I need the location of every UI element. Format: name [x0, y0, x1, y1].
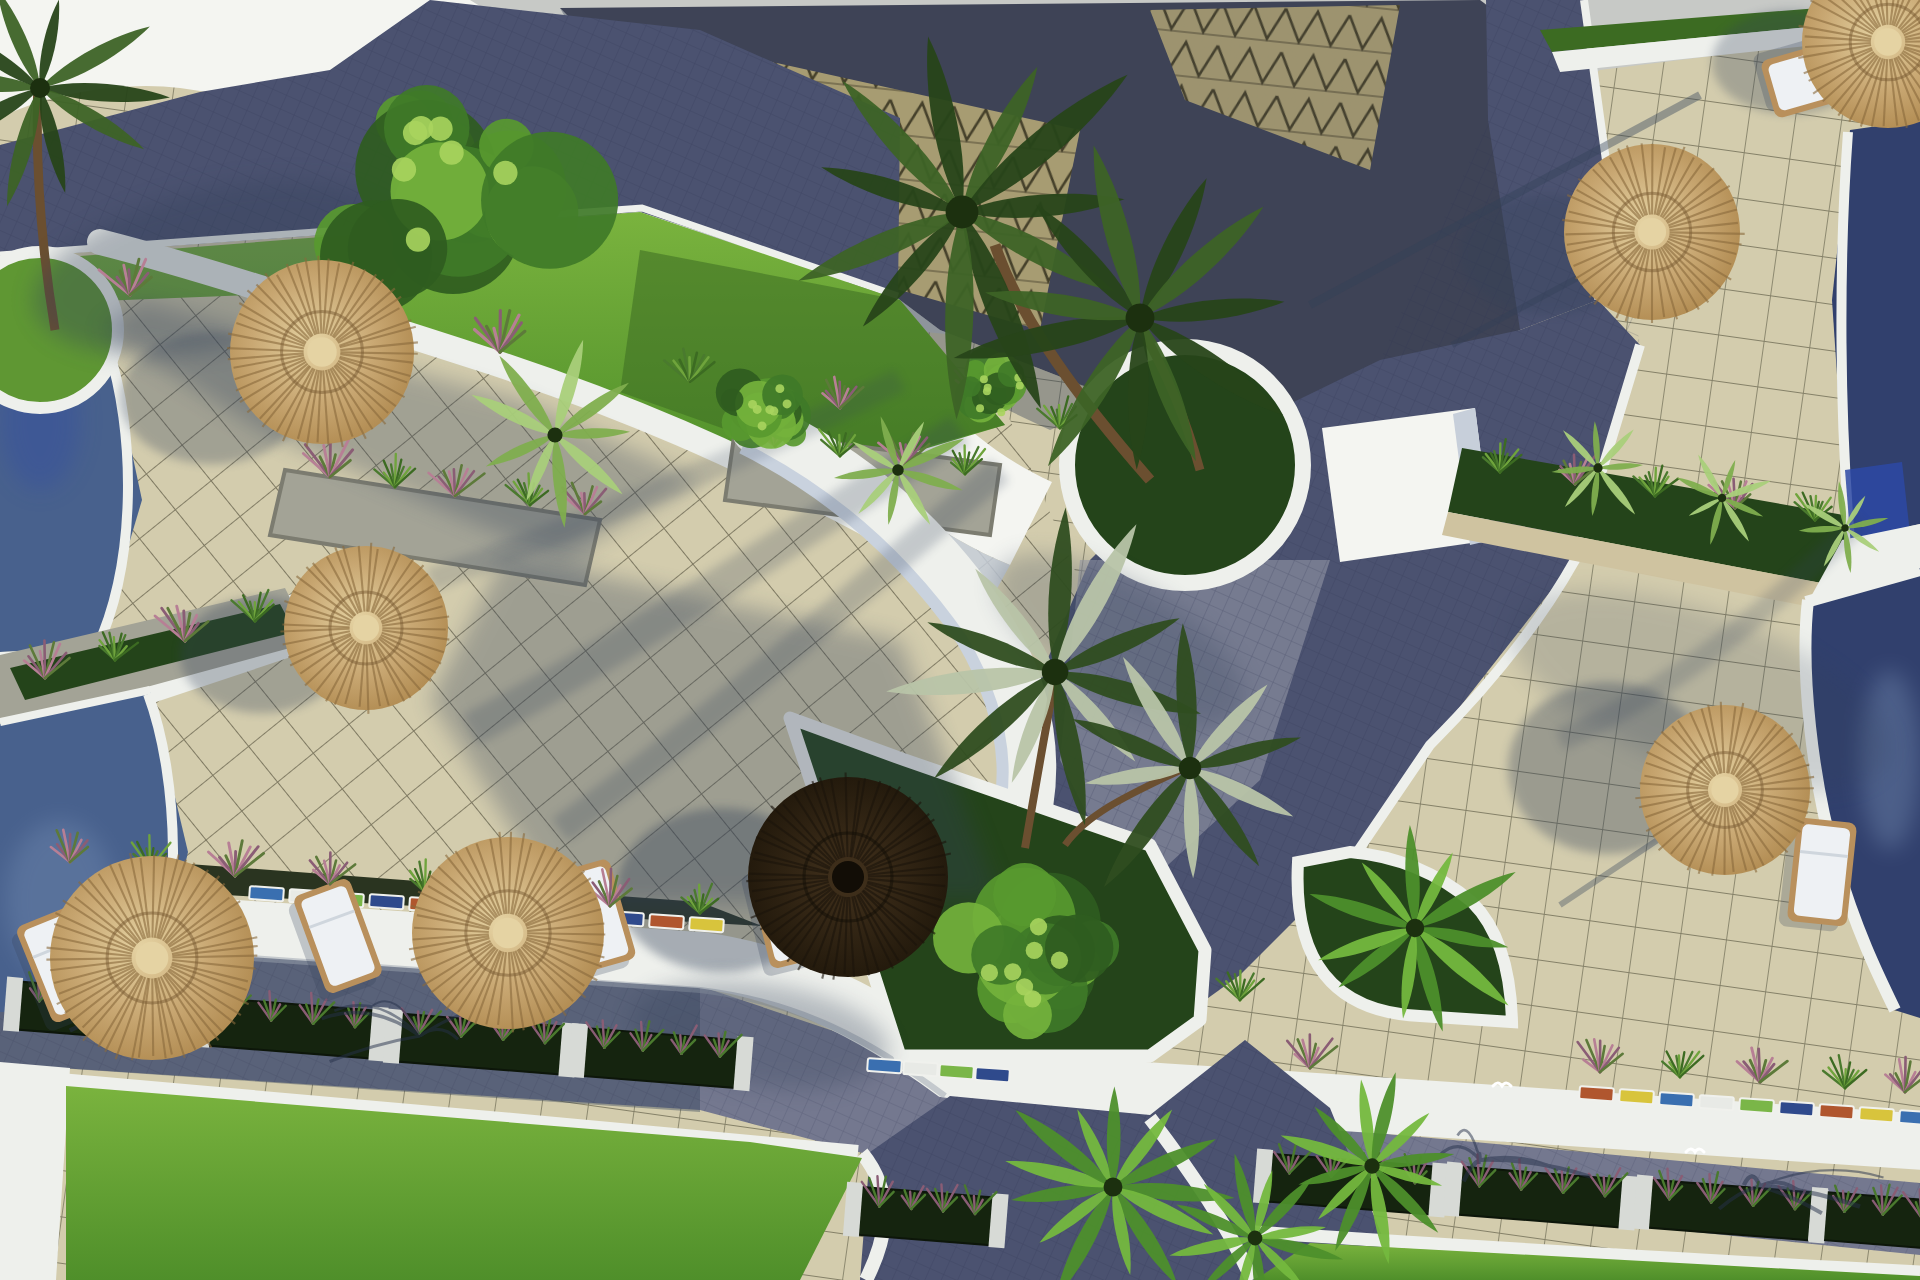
mosaic-tile — [1659, 1092, 1694, 1107]
foliage-highlight — [406, 228, 430, 252]
mosaic-tile — [1819, 1104, 1854, 1119]
foliage-highlight — [753, 405, 762, 414]
umbrella-cap — [493, 918, 524, 949]
grass-blade — [44, 640, 45, 678]
palm-crown — [1104, 1178, 1123, 1197]
thatch-strand — [340, 352, 417, 353]
umbrella-cap — [353, 615, 379, 641]
thatch-strand — [1905, 41, 1920, 42]
foliage-highlight — [1016, 382, 1024, 390]
umbrella-cap — [1638, 218, 1666, 246]
umbrella-cap — [307, 337, 336, 366]
foliage-highlight — [1051, 952, 1068, 969]
foliage-highlight — [439, 140, 463, 164]
foliage-highlight — [997, 408, 1005, 416]
foliage-highlight — [1004, 963, 1021, 980]
mosaic-tile — [867, 1058, 902, 1073]
grass-blade — [1759, 1049, 1760, 1082]
lounger-cushion — [1793, 824, 1850, 921]
foliage-highlight — [1030, 918, 1047, 935]
mosaic-tile — [369, 894, 404, 909]
mosaic-tile — [975, 1067, 1010, 1082]
mosaic-tile — [1699, 1095, 1734, 1110]
umbrella-cap — [1711, 776, 1738, 803]
palm-crown — [547, 427, 562, 442]
thatch-strand — [1670, 232, 1745, 233]
mosaic-tile — [1739, 1098, 1774, 1113]
mosaic-tile — [903, 1061, 938, 1076]
thatch-strand — [1742, 788, 1814, 789]
mosaic-tile — [649, 914, 684, 929]
foliage-highlight — [980, 375, 988, 383]
foliage-blob — [481, 132, 618, 269]
umbrella-cap — [1874, 28, 1902, 56]
foliage-highlight — [493, 161, 517, 185]
foliage-blob — [1045, 914, 1113, 982]
foliage-highlight — [981, 964, 998, 981]
foliage-highlight — [775, 384, 784, 393]
foliage-highlight — [1026, 942, 1043, 959]
thatch-strand — [46, 958, 131, 959]
mosaic-tile — [1579, 1086, 1614, 1101]
foliage-highlight — [783, 399, 792, 408]
mosaic-tile — [249, 886, 284, 901]
mosaic-tile — [1899, 1110, 1920, 1125]
branch-line — [1479, 1154, 1480, 1164]
foliage-blob — [993, 863, 1056, 926]
foliage-highlight — [1016, 978, 1033, 995]
mosaic-tile — [1619, 1089, 1654, 1104]
umbrella-cap — [832, 861, 864, 893]
foliage-highlight — [392, 157, 416, 181]
foliage-highlight — [758, 421, 767, 430]
resort-aerial-scene — [0, 0, 1920, 1280]
mosaic-tile — [1859, 1107, 1894, 1122]
mosaic-tile — [939, 1064, 974, 1079]
foliage-highlight — [409, 116, 433, 140]
bush-tree — [716, 368, 811, 448]
foliage-highlight — [769, 407, 778, 416]
mosaic-tile — [689, 917, 724, 932]
umbrella-cap — [136, 942, 169, 975]
foliage-highlight — [976, 404, 984, 412]
palm-crown — [30, 78, 50, 98]
foliage-blob — [721, 389, 743, 411]
thatch-strand — [382, 628, 445, 629]
foliage-highlight — [984, 384, 992, 392]
palm-crown — [1593, 463, 1602, 472]
aerial-render-canvas — [0, 0, 1920, 1280]
palm-crown — [946, 196, 979, 229]
thatch-strand — [152, 978, 153, 1056]
thatch-strand — [527, 933, 605, 934]
foliage-blob — [971, 925, 1030, 984]
mosaic-tile — [1779, 1101, 1814, 1116]
